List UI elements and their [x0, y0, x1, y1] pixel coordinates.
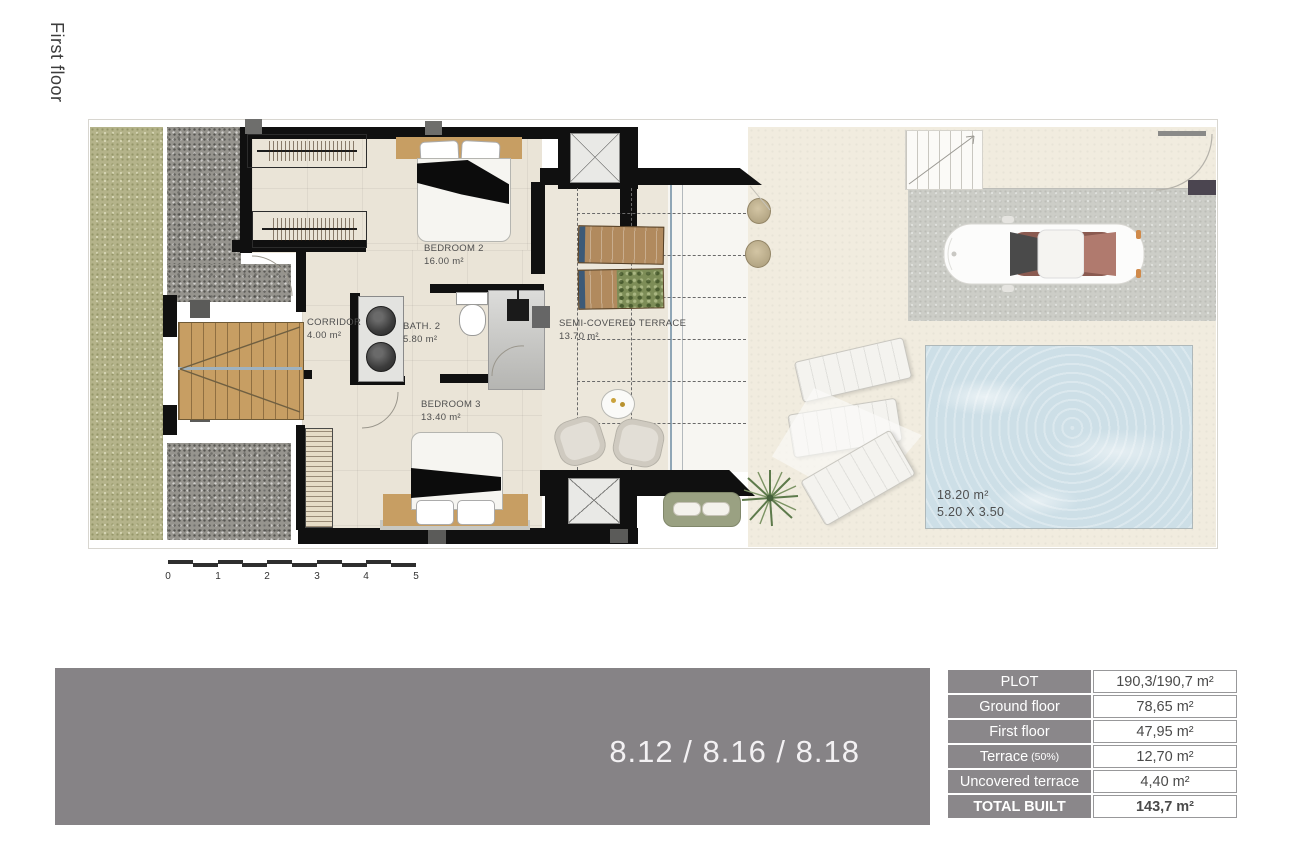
scale-seg [342, 563, 367, 567]
table-label: First floor [948, 720, 1091, 743]
table-value: 12,70 m² [1093, 745, 1237, 768]
table-label: Ground floor [948, 695, 1091, 718]
table-label: Terrace (50%) [948, 745, 1091, 768]
scale-seg [317, 560, 342, 564]
scale-seg [168, 560, 193, 564]
gravel-area-mid [167, 264, 291, 302]
cushion [702, 502, 730, 516]
unit-banner: 8.12 / 8.16 / 8.18 [55, 668, 930, 825]
wall [531, 182, 545, 274]
table-label: PLOT [948, 670, 1091, 693]
table-row: First floor 47,95 m² [948, 720, 1237, 743]
exterior-stairs [905, 130, 983, 190]
scale-tick: 1 [212, 571, 224, 582]
pool-label: 18.20 m² 5.20 X 3.50 [937, 487, 1004, 521]
scale-seg [366, 560, 391, 564]
plant-icon [747, 198, 771, 224]
wall [296, 252, 306, 312]
pillow-icon [457, 500, 495, 525]
elevator-shaft-icon [570, 133, 620, 183]
room-name: BATH. 2 [403, 321, 440, 334]
floor-title: First floor [46, 22, 67, 103]
scale-seg [267, 560, 292, 564]
pool-dimensions-text: 5.20 X 3.50 [937, 504, 1004, 521]
plant-icon [745, 240, 771, 268]
room-name: SEMI-COVERED TERRACE [559, 318, 689, 331]
pergola-line [577, 213, 746, 214]
cushion [673, 502, 701, 516]
table-label: Uncovered terrace [948, 770, 1091, 793]
sofa-icon [663, 492, 741, 527]
pergola-line [577, 381, 746, 382]
room-name: BEDROOM 2 [424, 243, 484, 256]
scale-seg [242, 563, 267, 567]
table-label-note: (50%) [1031, 751, 1059, 763]
table-value: 47,95 m² [1093, 720, 1237, 743]
column [425, 121, 442, 135]
closet-icon [305, 428, 333, 528]
column [428, 530, 446, 544]
toilet-icon [459, 304, 486, 336]
room-name: CORRIDOR [307, 317, 369, 330]
stair-landing-rail [178, 367, 302, 370]
scale-tick: 3 [311, 571, 323, 582]
room-area: 4.00 m² [307, 330, 369, 343]
table-row: Ground floor 78,65 m² [948, 695, 1237, 718]
table-row: PLOT 190,3/190,7 m² [948, 670, 1237, 693]
wall [296, 425, 305, 530]
table-row-total: TOTAL BUILT 143,7 m² [948, 795, 1237, 818]
scale-tick: 2 [261, 571, 273, 582]
table-label-text: Terrace [980, 749, 1028, 765]
elevator-shaft-icon [568, 478, 620, 524]
gravel-area-top [167, 127, 241, 264]
car-icon [938, 208, 1150, 300]
pergola-line [577, 423, 746, 424]
entrance-gate [1158, 131, 1206, 136]
column [610, 529, 628, 543]
pool-area-text: 18.20 m² [937, 487, 1004, 504]
room-area: 16.00 m² [424, 256, 484, 269]
dryer-icon [366, 342, 396, 372]
scale-tick: 4 [360, 571, 372, 582]
scale-tick: 5 [410, 571, 422, 582]
towel [616, 269, 663, 308]
washbasin-icon [532, 306, 550, 328]
table-value: 78,65 m² [1093, 695, 1237, 718]
wardrobe-icon [247, 134, 367, 168]
gravel-area-bottom [167, 443, 291, 540]
wall [163, 405, 177, 435]
room-area: 13.40 m² [421, 412, 481, 425]
area-table: PLOT 190,3/190,7 m² Ground floor 78,65 m… [948, 670, 1237, 820]
table-value: 4,40 m² [1093, 770, 1237, 793]
wardrobe-icon [252, 211, 367, 248]
shower-stem [517, 290, 519, 300]
column [190, 300, 210, 318]
room-label-terrace: SEMI-COVERED TERRACE 13.70 m² [559, 318, 689, 344]
column [245, 119, 262, 134]
washer-icon [366, 306, 396, 336]
grass-strip [90, 127, 163, 540]
side-table-icon [601, 389, 635, 419]
room-label-bedroom3: BEDROOM 3 13.40 m² [421, 399, 481, 425]
pillow-icon [416, 500, 454, 525]
table-label: TOTAL BUILT [948, 795, 1091, 818]
scale-seg [391, 563, 416, 567]
scale-seg [292, 563, 317, 567]
sun-lounger-icon [578, 225, 665, 264]
scale-seg [193, 563, 218, 567]
room-area: 5.80 m² [403, 334, 440, 347]
table-value: 143,7 m² [1093, 795, 1237, 818]
palm-tree-icon [738, 466, 802, 530]
room-label-bedroom2: BEDROOM 2 16.00 m² [424, 243, 484, 269]
room-label-corridor: CORRIDOR 4.00 m² [307, 317, 369, 343]
table-value: 190,3/190,7 m² [1093, 670, 1237, 693]
gate-post [1188, 180, 1216, 195]
unit-numbers: 8.12 / 8.16 / 8.18 [609, 734, 860, 770]
room-label-bath2: BATH. 2 5.80 m² [403, 321, 440, 347]
scale-seg [218, 560, 243, 564]
table-row: Uncovered terrace 4,40 m² [948, 770, 1237, 793]
sun-lounger-icon [578, 268, 665, 309]
room-name: BEDROOM 3 [421, 399, 481, 412]
scale-tick: 0 [162, 571, 174, 582]
room-area: 13.70 m² [559, 331, 689, 344]
shower-head-icon [507, 299, 529, 321]
wall [163, 295, 177, 337]
table-row: Terrace (50%) 12,70 m² [948, 745, 1237, 768]
staircase-icon [178, 322, 304, 420]
